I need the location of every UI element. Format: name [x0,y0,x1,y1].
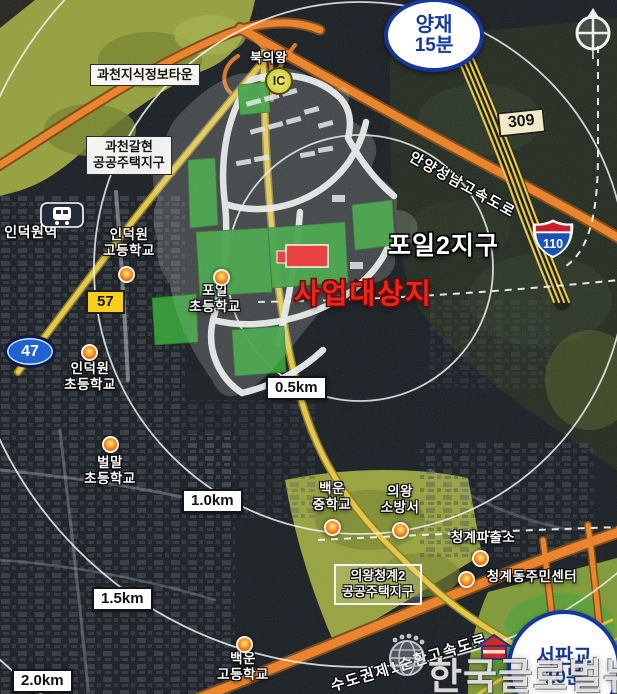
travel-badge-yangjae: 양재 15분 [384,0,484,72]
poil2-district-title: 포일2지구 [388,226,499,262]
subway-station-icon [40,202,84,233]
project-site-title: 사업대상지 [294,272,433,312]
north-arrow-icon [570,6,616,65]
ring-label-1-0km: 1.0km [182,489,243,513]
watermark-text: 한국글로벌뉴스 [428,646,617,694]
place-dot [324,519,341,536]
route-47-number: 47 [21,343,39,361]
route-309-badge: 309 [497,108,546,138]
district-box-uiwang-cheonggye2: 의왕청계2 공공주택지구 [334,564,422,605]
place-baegun-high-school: 백운 고등학교 [200,651,286,683]
ring-label-1-5km: 1.5km [92,587,153,611]
route-57-badge: 57 [86,290,125,314]
place-dot [458,571,475,588]
ring-label-0-5km: 0.5km [266,376,327,400]
district-box-gwacheon-knowledge-town: 과천지식정보타운 [90,64,200,86]
place-label: 청계동주민센터 [477,569,587,585]
ring-label-2-0km: 2.0km [12,669,73,693]
badge-time: 15분 [415,36,454,56]
place-label: 포일 초등학교 [180,283,250,315]
badge-destination: 양재 [416,15,453,36]
route-47-shield: 47 [4,335,56,368]
map-stage: 양재 15분 서판교 10분 과천지식정보타운 과천갈현 공공주택지구 의왕청계… [0,0,617,694]
place-label: 청계파출소 [440,530,526,546]
place-dot [392,522,409,539]
place-dot [236,636,253,653]
svg-text:110: 110 [543,237,563,251]
place-label: 의왕 소방서 [366,484,434,516]
place-indeogwon-elementary: 인덕원 초등학교 [54,361,126,393]
district-box-gwacheon-galhyeon: 과천갈현 공공주택지구 [86,136,172,175]
route-110-shield: 110 [531,218,575,265]
ic-badge: IC [265,67,293,95]
place-dot [102,436,119,453]
place-dot [472,550,489,567]
place-label: 인덕원 초등학교 [54,361,126,393]
globe-watermark-icon [385,633,429,684]
place-beolmal-elementary: 벌말 초등학교 [68,455,152,487]
place-cheonggye-community-center: 청계동주민센터 [477,569,587,585]
place-dot [213,269,230,286]
place-cheonggye-police-box: 청계파출소 [440,530,526,546]
place-indeogwon-high-school: 인덕원 고등학교 [94,227,164,259]
place-uiwang-fire-station: 의왕 소방서 [366,484,434,516]
place-dot [118,266,135,283]
place-dot [81,344,98,361]
ic-name-label: 북의왕 [250,50,287,65]
place-poil-elementary: 포일 초등학교 [180,283,250,315]
place-label: 백운 중학교 [300,481,364,513]
place-label: 백운 고등학교 [200,651,286,683]
place-label: 인덕원 고등학교 [94,227,164,259]
place-baegun-middle-school: 백운 중학교 [300,481,364,513]
place-label: 벌말 초등학교 [68,455,152,487]
